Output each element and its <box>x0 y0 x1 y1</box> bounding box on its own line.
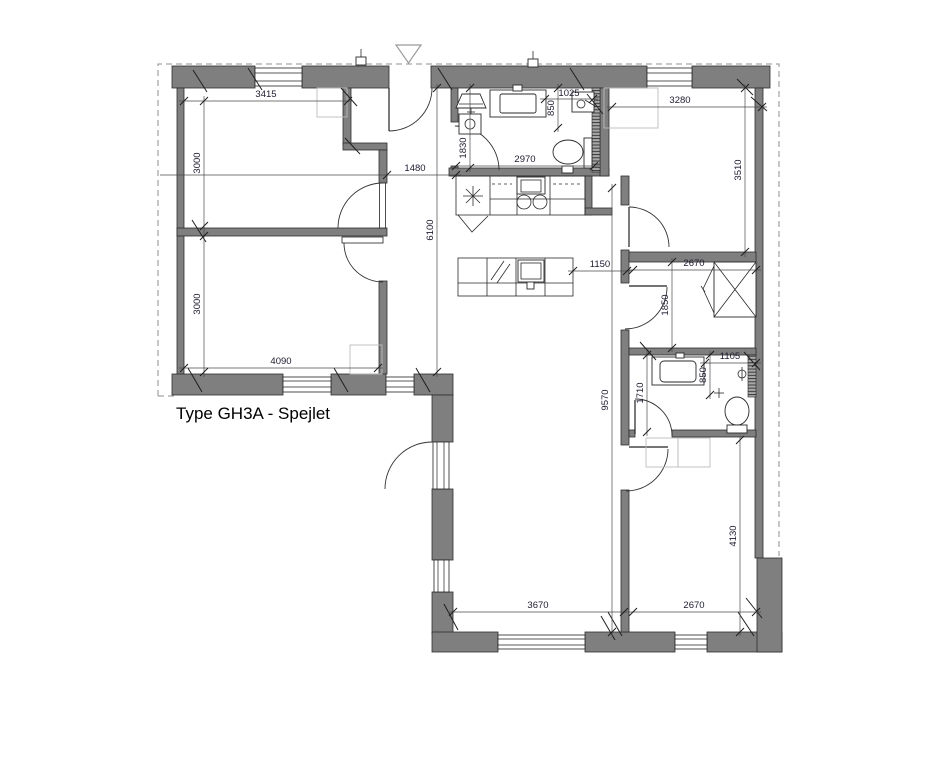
dimension-3415: 3415 <box>179 89 353 105</box>
dim-label: 2970 <box>514 154 535 165</box>
dim-label: 1710 <box>635 382 646 403</box>
dim-label: 1830 <box>458 137 469 158</box>
dim-label: 3510 <box>733 159 744 180</box>
shower-mixer-icon <box>738 367 746 381</box>
window <box>386 377 414 392</box>
island-sink-icon <box>518 260 544 289</box>
bedroom3-door <box>626 447 668 491</box>
window <box>647 68 692 86</box>
dimension-3670: 3670 <box>448 600 629 616</box>
dim-label: 4130 <box>728 525 739 546</box>
dimension-1710: 1710 <box>635 351 651 436</box>
floor-drain-icon <box>714 388 724 398</box>
dim-label: 2670 <box>683 258 704 269</box>
bedroom2-door <box>342 237 383 282</box>
appliance-door-swing <box>458 215 488 232</box>
entrance-door <box>389 88 432 131</box>
dimension-3000-b: 3000 <box>192 231 208 377</box>
roof-vent-icon <box>528 51 538 67</box>
floor-plan-drawing: 3415 3000 4090 3000 1480 6100 1830 2970 … <box>0 0 937 766</box>
dim-label: 850 <box>546 100 557 116</box>
dim-label: 850 <box>698 367 709 383</box>
entrance-marker-icon <box>396 45 421 63</box>
dimension-2670-b: 2670 <box>628 600 761 616</box>
dim-label: 1105 <box>720 351 740 362</box>
dim-label: 3670 <box>527 600 548 611</box>
dim-label: 9570 <box>600 389 611 410</box>
dim-label: 3000 <box>192 152 203 173</box>
window <box>283 377 331 392</box>
dim-label: 2670 <box>683 600 704 611</box>
dimension-4090: 4090 <box>179 356 383 372</box>
vanity-sink-icon <box>652 353 704 385</box>
terrace-door <box>385 442 449 489</box>
dim-label: 1150 <box>590 259 610 270</box>
dimension-1480: 1480 <box>160 163 461 179</box>
plan-title: Type GH3A - Spejlet <box>176 404 330 423</box>
bedroom-right-door <box>629 207 669 247</box>
toilet-icon <box>725 397 749 433</box>
kitchen-counter <box>456 176 585 232</box>
dim-label: 3415 <box>255 89 276 100</box>
cooktop-icon <box>517 195 547 209</box>
floor-plan-canvas: 3415 3000 4090 3000 1480 6100 1830 2970 … <box>0 0 937 766</box>
window <box>255 68 302 86</box>
dim-label: 4090 <box>270 356 291 367</box>
dimension-9570: 9570 <box>600 184 616 636</box>
window <box>675 635 707 649</box>
dim-label: 1025 <box>558 88 579 99</box>
extractor-hood-icon <box>456 94 486 116</box>
freezer-star-icon <box>463 186 483 206</box>
dimension-3000-a: 3000 <box>192 96 208 231</box>
bedroom1-door <box>338 183 386 228</box>
dim-label: 1850 <box>660 294 671 315</box>
roof-vent-icon <box>356 49 366 65</box>
dim-label: 3000 <box>192 293 203 314</box>
dishwasher-icon <box>491 261 510 283</box>
dimension-3510: 3510 <box>733 84 749 257</box>
dim-label: 3280 <box>669 95 690 106</box>
dimension-1850: 1850 <box>660 258 676 352</box>
windows <box>255 68 707 649</box>
dimension-4130: 4130 <box>728 436 744 636</box>
kitchen-island <box>458 258 573 296</box>
dimension-3280: 3280 <box>607 95 767 111</box>
window <box>498 635 585 649</box>
kitchen-sink-icon <box>517 177 545 194</box>
laundry-sink-icon <box>490 85 546 117</box>
dim-label: 6100 <box>425 219 436 240</box>
window <box>434 560 449 592</box>
dim-label: 1480 <box>404 163 425 174</box>
dimension-6100: 6100 <box>425 84 441 377</box>
